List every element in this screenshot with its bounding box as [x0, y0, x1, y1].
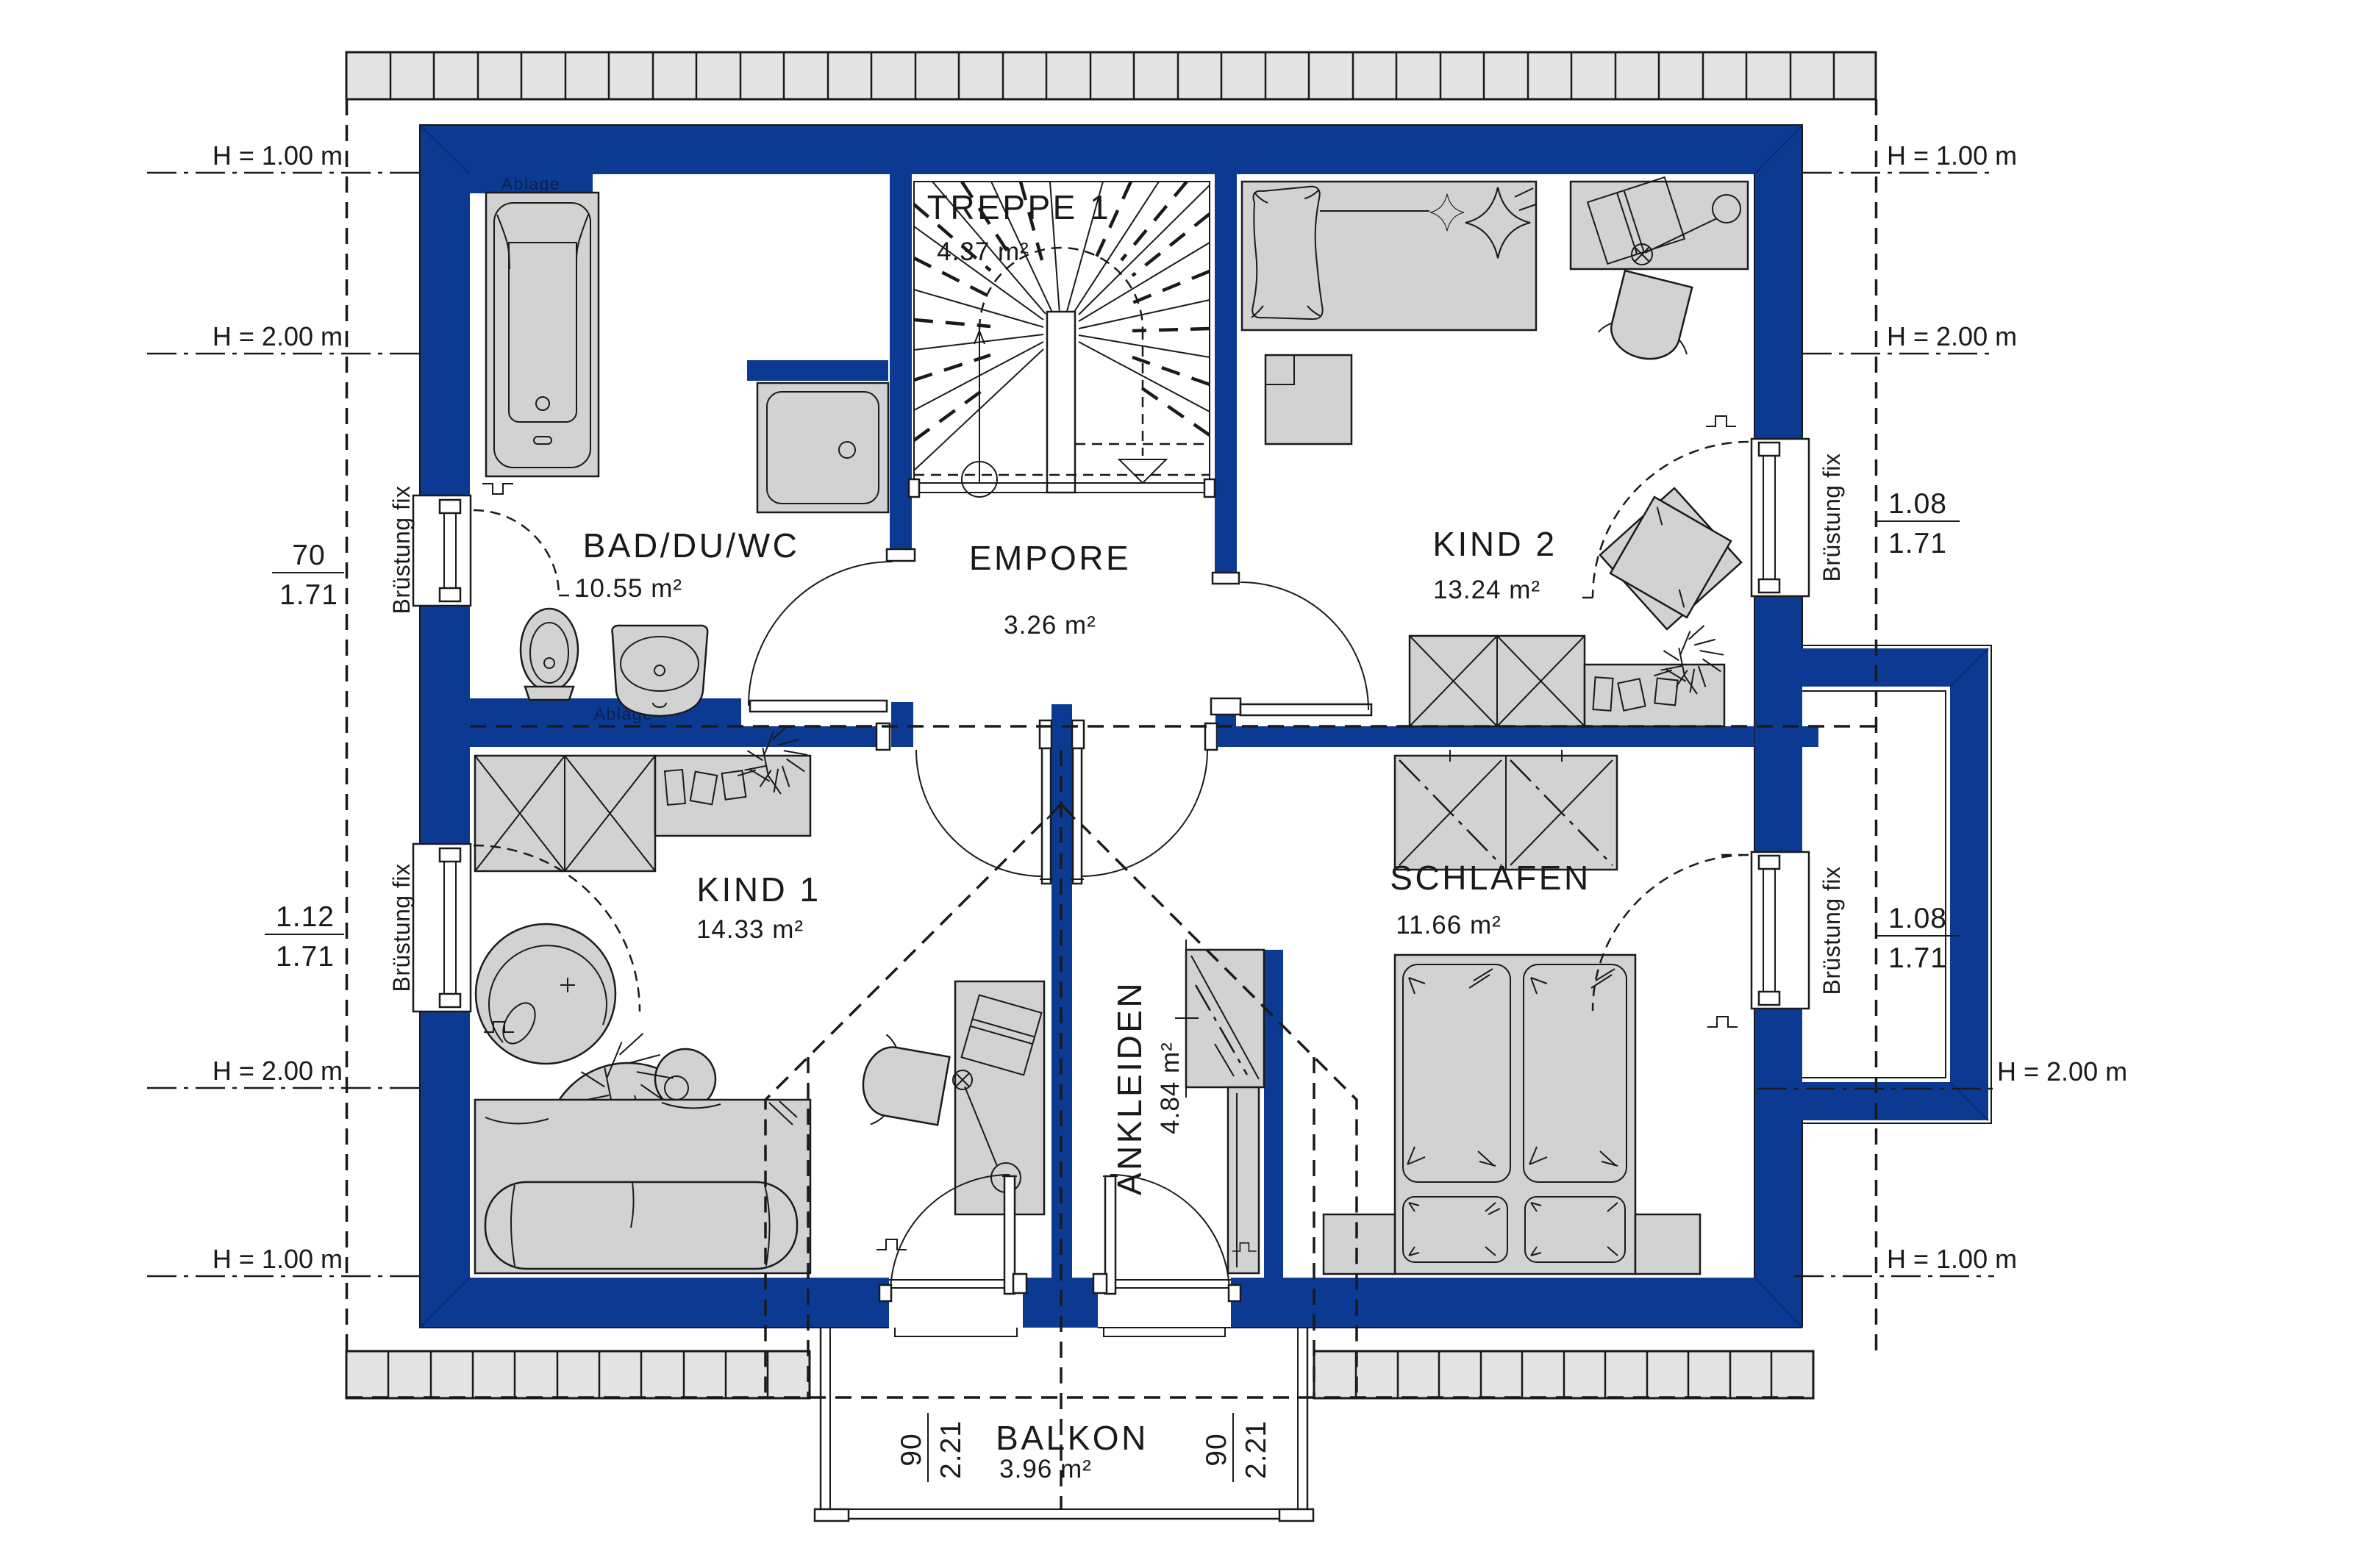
svg-text:3.26 m²: 3.26 m² — [1004, 611, 1096, 640]
svg-text:14.33 m²: 14.33 m² — [696, 915, 804, 944]
svg-text:1.71: 1.71 — [1888, 528, 1947, 559]
svg-text:70: 70 — [292, 540, 325, 571]
svg-text:3.96 m²: 3.96 m² — [999, 1455, 1092, 1483]
svg-text:H = 1.00 m: H = 1.00 m — [1887, 140, 2017, 171]
svg-text:1.71: 1.71 — [279, 579, 338, 611]
svg-text:H = 2.00 m: H = 2.00 m — [1997, 1056, 2127, 1086]
svg-text:Brüstung fix: Brüstung fix — [1818, 454, 1845, 582]
svg-text:H = 1.00 m: H = 1.00 m — [213, 1244, 343, 1274]
svg-text:Ablage: Ablage — [501, 174, 561, 193]
svg-text:H = 1.00 m: H = 1.00 m — [1887, 1244, 2017, 1274]
svg-text:EMPORE: EMPORE — [969, 539, 1131, 577]
svg-text:H = 2.00 m: H = 2.00 m — [1887, 321, 2017, 351]
svg-text:90: 90 — [896, 1433, 927, 1466]
svg-text:KIND 1: KIND 1 — [696, 870, 821, 909]
svg-text:10.55 m²: 10.55 m² — [575, 574, 682, 603]
svg-text:H = 1.00 m: H = 1.00 m — [213, 140, 343, 171]
svg-text:KIND 2: KIND 2 — [1432, 525, 1557, 563]
svg-text:11.66 m²: 11.66 m² — [1396, 911, 1502, 939]
svg-text:Brüstung fix: Brüstung fix — [388, 864, 415, 992]
svg-text:2.21: 2.21 — [935, 1420, 967, 1479]
svg-text:ANKLEIDEN: ANKLEIDEN — [1110, 981, 1149, 1195]
svg-text:1.71: 1.71 — [276, 941, 335, 973]
svg-text:BALKON: BALKON — [996, 1419, 1149, 1457]
svg-text:90: 90 — [1201, 1433, 1232, 1466]
svg-text:Brüstung fix: Brüstung fix — [388, 486, 415, 615]
svg-text:SCHLAFEN: SCHLAFEN — [1390, 859, 1590, 897]
svg-text:1.71: 1.71 — [1888, 942, 1947, 974]
svg-text:1.08: 1.08 — [1888, 488, 1947, 520]
svg-text:13.24 m²: 13.24 m² — [1433, 576, 1540, 604]
svg-text:H = 2.00 m: H = 2.00 m — [213, 1056, 343, 1086]
svg-text:1.12: 1.12 — [276, 901, 335, 933]
svg-text:2.21: 2.21 — [1240, 1420, 1272, 1479]
svg-text:H = 2.00 m: H = 2.00 m — [213, 321, 343, 351]
svg-text:4.37 m²: 4.37 m² — [937, 237, 1029, 266]
svg-text:1.08: 1.08 — [1888, 903, 1947, 934]
svg-text:BAD/DU/WC: BAD/DU/WC — [583, 526, 800, 565]
svg-text:Brüstung fix: Brüstung fix — [1818, 867, 1845, 995]
svg-text:TREPPE 1: TREPPE 1 — [927, 188, 1111, 226]
svg-text:4.84 m²: 4.84 m² — [1156, 1042, 1185, 1134]
